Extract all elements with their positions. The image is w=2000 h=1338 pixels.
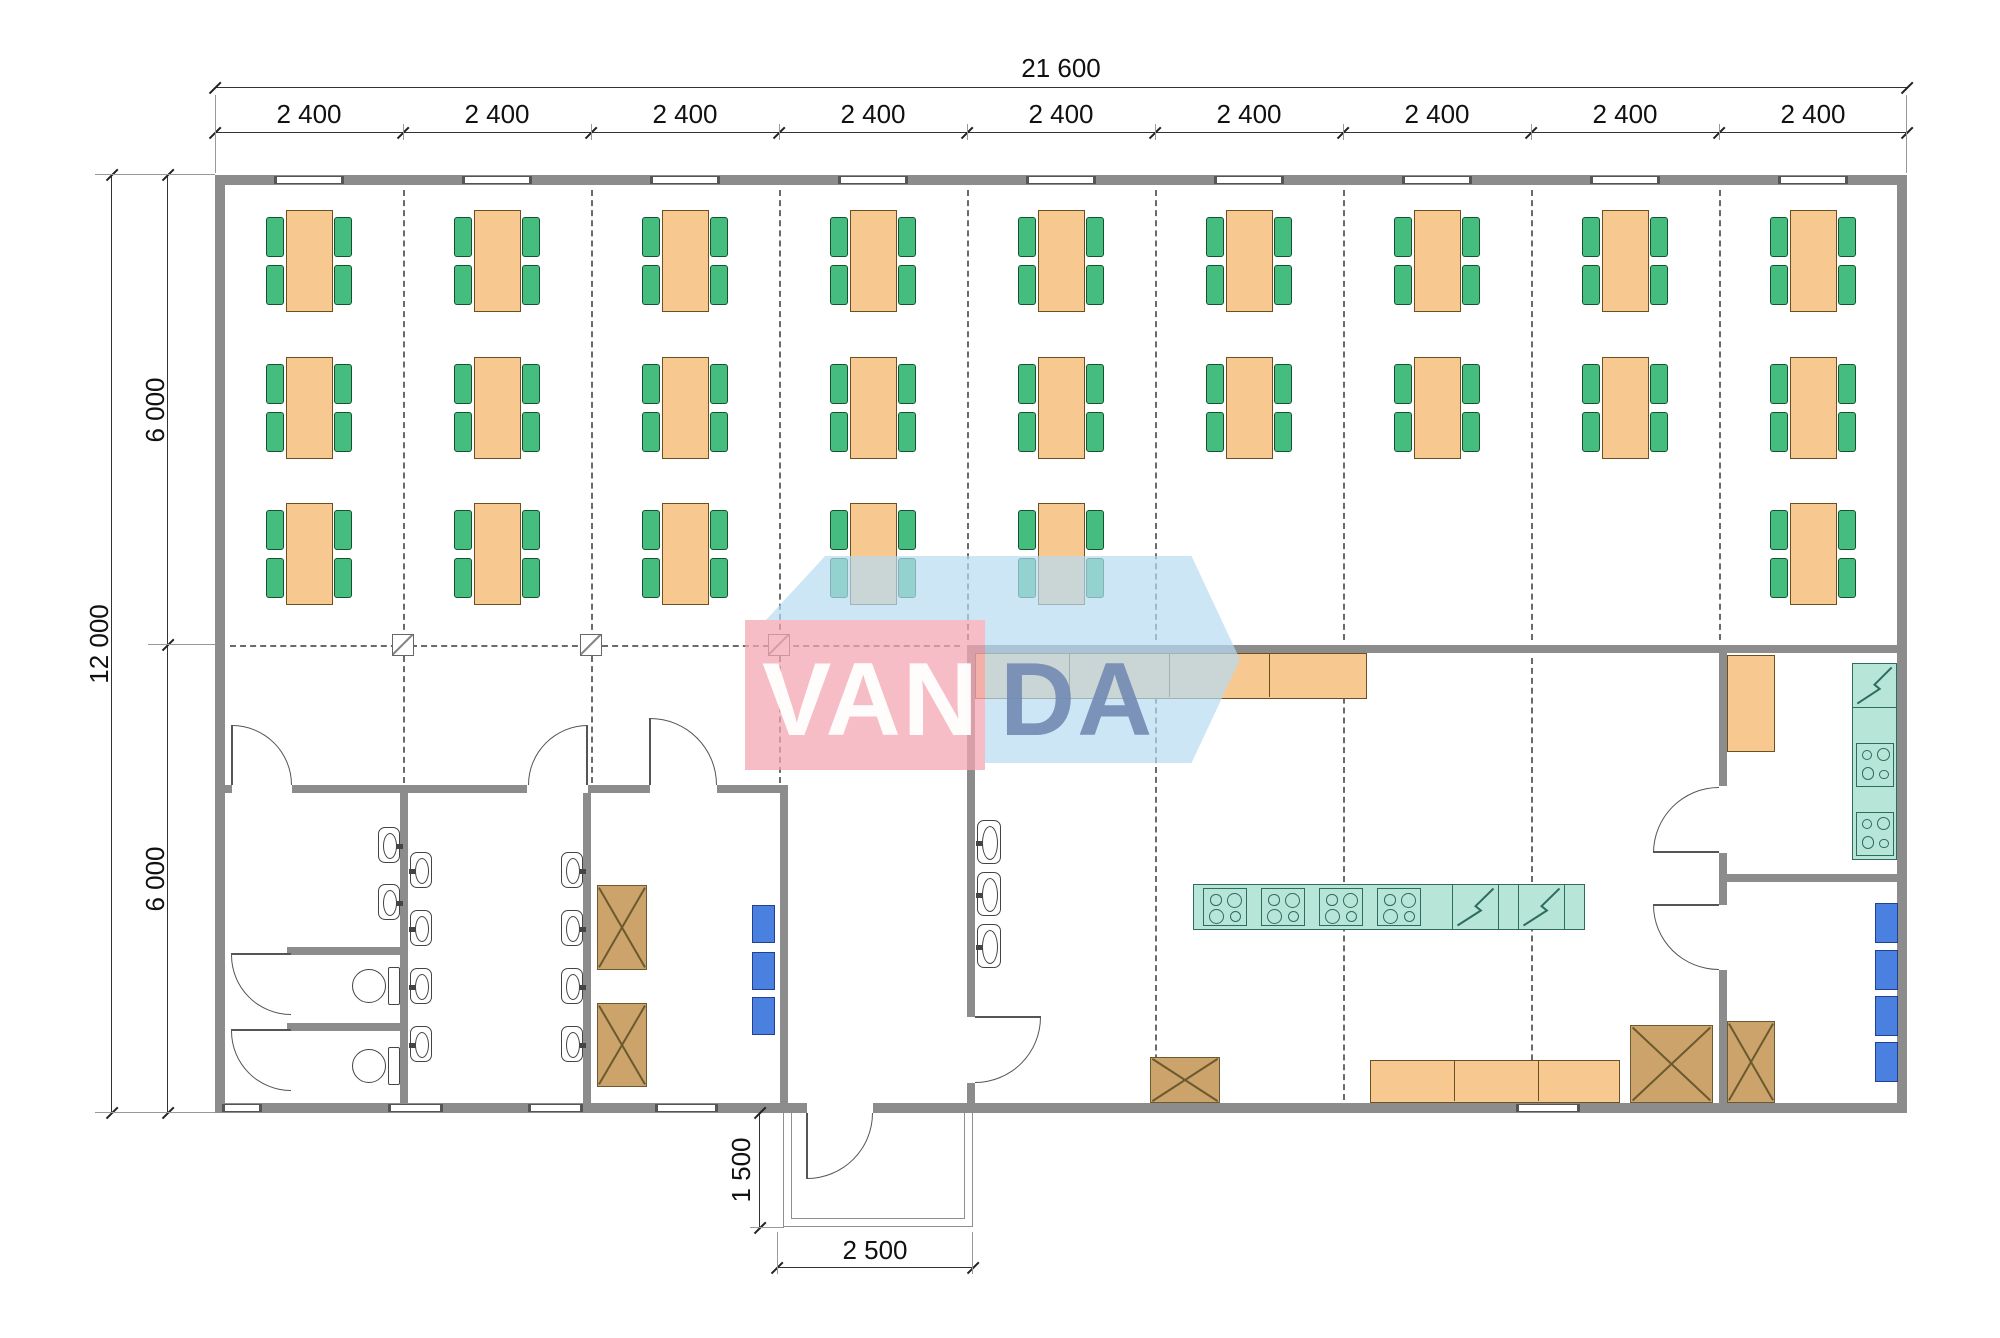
wall: [717, 785, 788, 793]
chair: [898, 265, 916, 305]
chair: [642, 558, 660, 598]
wash-basin: [561, 1026, 583, 1062]
dining-table: [1414, 210, 1461, 312]
dining-table: [1790, 210, 1837, 312]
chair: [898, 510, 916, 550]
chair: [522, 510, 540, 550]
dining-table: [850, 503, 897, 605]
grid-line: [779, 190, 781, 640]
grid-line: [1155, 190, 1157, 640]
stove: [1856, 812, 1894, 856]
basin-tap: [976, 841, 983, 846]
wall: [780, 793, 788, 1103]
chair: [830, 412, 848, 452]
dining-table: [474, 503, 521, 605]
extension-line: [591, 124, 592, 140]
burner: [1879, 770, 1889, 780]
basin-tap: [579, 927, 586, 932]
wall: [1719, 653, 1727, 786]
floor-plan-canvas: 21 60012 0006 0006 0001 5002 5002 4002 4…: [0, 0, 2000, 1338]
extension-line: [967, 124, 968, 140]
extension-line: [95, 1112, 215, 1113]
storage-cabinet: [597, 885, 647, 970]
chair: [1206, 217, 1224, 257]
dining-table: [1038, 357, 1085, 459]
wash-basin: [561, 910, 583, 946]
wash-basin: [561, 852, 583, 888]
chair: [1582, 265, 1600, 305]
stove: [1261, 888, 1305, 926]
chair: [1582, 364, 1600, 404]
burner: [1862, 819, 1872, 829]
dimension-line: [777, 1267, 973, 1268]
chair: [1394, 217, 1412, 257]
dim-bay-width: 2 400: [1585, 101, 1665, 127]
chair: [898, 217, 916, 257]
chair: [522, 217, 540, 257]
burner: [1268, 894, 1279, 905]
chair: [266, 558, 284, 598]
window: [1778, 176, 1848, 184]
window: [650, 176, 720, 184]
burner: [1209, 909, 1224, 924]
chair: [642, 364, 660, 404]
basin-bowl: [566, 974, 580, 1000]
wall: [1719, 853, 1727, 905]
extension-line: [972, 1232, 973, 1274]
extension-line: [148, 644, 215, 645]
wash-basin: [410, 852, 432, 888]
dining-table: [286, 210, 333, 312]
chair: [710, 265, 728, 305]
chair: [1838, 510, 1856, 550]
chair: [1462, 412, 1480, 452]
burner: [1267, 909, 1282, 924]
serving-counter: [975, 653, 1367, 699]
locker: [752, 997, 775, 1035]
toilet-tank: [388, 967, 400, 1005]
wall: [873, 1103, 1907, 1113]
counter-divider: [1454, 1061, 1455, 1101]
door-leaf: [1653, 851, 1719, 853]
wall: [215, 175, 225, 1113]
door-leaf: [231, 725, 233, 785]
wash-basin: [977, 872, 1001, 916]
counter-divider: [1169, 654, 1170, 697]
basin-bowl: [982, 930, 998, 964]
chair: [1086, 217, 1104, 257]
toilet: [352, 1046, 400, 1086]
chair: [1838, 265, 1856, 305]
dining-table: [662, 210, 709, 312]
grid-line: [1155, 658, 1157, 1100]
extension-line: [779, 124, 780, 140]
chair: [454, 217, 472, 257]
chair: [266, 412, 284, 452]
chair: [1650, 217, 1668, 257]
locker: [752, 905, 775, 943]
wall: [287, 1023, 400, 1031]
dim-bay-width: 2 400: [1397, 101, 1477, 127]
chair: [334, 510, 352, 550]
burner: [1404, 911, 1415, 922]
dining-table: [286, 357, 333, 459]
chair: [642, 412, 660, 452]
burner: [1288, 911, 1299, 922]
wash-basin: [410, 910, 432, 946]
burner: [1384, 894, 1395, 905]
chair: [1770, 412, 1788, 452]
storage-cabinet: [1630, 1025, 1713, 1103]
basin-tap: [396, 901, 403, 906]
chair: [642, 510, 660, 550]
chair: [830, 558, 848, 598]
burner: [1877, 748, 1890, 761]
chair: [1838, 412, 1856, 452]
extension-line: [1531, 124, 1532, 140]
watermark-text-left: VAN: [762, 648, 980, 752]
dim-bay-width: 2 400: [645, 101, 725, 127]
burner: [1343, 893, 1358, 908]
column-marker: [580, 634, 602, 656]
toilet-bowl: [352, 1049, 386, 1083]
wash-basin: [977, 820, 1001, 864]
dim-porch-width: 2 500: [830, 1237, 920, 1263]
burner: [1325, 909, 1340, 924]
chair: [334, 217, 352, 257]
burner: [1879, 839, 1889, 849]
chair: [1018, 558, 1036, 598]
basin-bowl: [566, 1032, 580, 1058]
basin-tap: [409, 985, 416, 990]
dining-table: [662, 357, 709, 459]
chair: [1206, 364, 1224, 404]
door-leaf: [586, 725, 588, 785]
column-marker: [392, 634, 414, 656]
dimension-line: [215, 132, 1907, 133]
chair: [830, 217, 848, 257]
burner: [1877, 817, 1890, 830]
chair: [454, 364, 472, 404]
chair: [642, 217, 660, 257]
wall: [583, 793, 591, 1103]
door-leaf: [975, 1016, 1041, 1018]
chair: [334, 364, 352, 404]
chair: [454, 412, 472, 452]
door-arc: [650, 718, 717, 785]
basin-bowl: [383, 890, 397, 916]
dim-bay-width: 2 400: [1773, 101, 1853, 127]
chair: [1018, 510, 1036, 550]
chair: [1086, 558, 1104, 598]
chair: [266, 265, 284, 305]
window: [1590, 176, 1660, 184]
chair: [522, 265, 540, 305]
basin-bowl: [415, 916, 429, 942]
chair: [710, 510, 728, 550]
porch-outline: [791, 1113, 965, 1219]
extension-line: [1719, 124, 1720, 140]
dining-table: [1602, 210, 1649, 312]
chair: [1770, 217, 1788, 257]
column-marker: [768, 634, 790, 656]
wall: [967, 1083, 975, 1103]
toilet-tank: [388, 1047, 400, 1085]
dining-table: [286, 503, 333, 605]
wall: [1897, 175, 1907, 1113]
window: [388, 1104, 443, 1112]
locker: [1875, 950, 1898, 990]
dining-table: [474, 357, 521, 459]
chair: [1582, 412, 1600, 452]
grid-line: [779, 656, 781, 783]
burner: [1210, 894, 1221, 905]
door-leaf: [649, 718, 651, 785]
chair: [454, 265, 472, 305]
chair: [710, 364, 728, 404]
kitchen-counter: [1370, 1060, 1620, 1103]
refrigerator-symbol: [1518, 884, 1565, 930]
chair: [898, 558, 916, 598]
chair: [1394, 412, 1412, 452]
burner: [1862, 750, 1872, 760]
extension-line: [1906, 95, 1907, 173]
window: [528, 1104, 583, 1112]
chair: [1274, 217, 1292, 257]
door-arc: [231, 955, 291, 1015]
chair: [1462, 265, 1480, 305]
chair: [454, 558, 472, 598]
basin-tap: [976, 893, 983, 898]
stove: [1319, 888, 1363, 926]
dining-table: [850, 210, 897, 312]
dim-half-height-top: 6 000: [142, 365, 168, 455]
wall: [967, 645, 975, 1017]
grid-line: [403, 656, 405, 783]
chair: [1274, 265, 1292, 305]
grid-line: [967, 190, 969, 640]
extension-line: [777, 1232, 778, 1274]
basin-bowl: [415, 858, 429, 884]
door-arc: [231, 1031, 291, 1091]
burner: [1230, 911, 1241, 922]
door-arc: [1653, 905, 1719, 970]
chair: [522, 558, 540, 598]
window: [274, 176, 344, 184]
chair: [1086, 265, 1104, 305]
basin-tap: [409, 1043, 416, 1048]
chair: [1394, 265, 1412, 305]
chair: [1838, 364, 1856, 404]
chair: [1086, 412, 1104, 452]
stove: [1377, 888, 1421, 926]
locker: [752, 952, 775, 990]
chair: [830, 265, 848, 305]
door-arc: [528, 725, 588, 785]
window: [838, 176, 908, 184]
wall: [292, 785, 527, 793]
dining-table: [1414, 357, 1461, 459]
chair: [266, 510, 284, 550]
stove: [1203, 888, 1247, 926]
chair: [1770, 364, 1788, 404]
grid-line: [1531, 658, 1533, 1100]
counter-divider: [1269, 654, 1270, 697]
door-arc: [232, 725, 292, 785]
burner: [1285, 893, 1300, 908]
locker: [1875, 996, 1898, 1036]
chair: [334, 558, 352, 598]
basin-tap: [976, 945, 983, 950]
chair: [1206, 412, 1224, 452]
wall: [215, 1103, 807, 1113]
grid-line: [1343, 658, 1345, 1100]
basin-bowl: [566, 858, 580, 884]
wall: [1719, 970, 1727, 1103]
dining-table: [1038, 210, 1085, 312]
storage-cabinet: [597, 1003, 647, 1087]
chair: [1206, 265, 1224, 305]
chair: [334, 412, 352, 452]
extension-line: [403, 124, 404, 140]
chair: [710, 217, 728, 257]
wall: [400, 793, 408, 1103]
dim-bay-width: 2 400: [269, 101, 349, 127]
basin-tap: [409, 869, 416, 874]
extension-line: [215, 95, 216, 173]
basin-tap: [579, 1043, 586, 1048]
chair: [1770, 265, 1788, 305]
dim-bay-width: 2 400: [833, 101, 913, 127]
dimension-line: [759, 1113, 760, 1228]
dim-total-height: 12 000: [86, 599, 112, 689]
window: [222, 1104, 262, 1112]
wash-basin: [410, 968, 432, 1004]
door-arc: [1653, 787, 1719, 853]
toilet-bowl: [352, 969, 386, 1003]
chair: [1018, 364, 1036, 404]
chair: [1462, 364, 1480, 404]
wash-basin: [977, 924, 1001, 968]
chair: [1650, 412, 1668, 452]
chair: [642, 265, 660, 305]
extension-line: [1155, 124, 1156, 140]
chair: [898, 364, 916, 404]
chair: [1838, 558, 1856, 598]
basin-tap: [409, 927, 416, 932]
wall: [588, 785, 650, 793]
window: [655, 1104, 718, 1112]
dim-bay-width: 2 400: [1021, 101, 1101, 127]
door-leaf: [1653, 904, 1719, 906]
chair: [1018, 217, 1036, 257]
extension-line: [1343, 124, 1344, 140]
grid-line: [591, 190, 593, 640]
chair: [1086, 364, 1104, 404]
wall: [225, 785, 232, 793]
grid-line: [403, 190, 405, 640]
locker: [1875, 903, 1898, 943]
basin-bowl: [415, 974, 429, 1000]
chair: [830, 364, 848, 404]
burner: [1401, 893, 1416, 908]
door-arc: [975, 1017, 1041, 1083]
dining-table: [1226, 210, 1273, 312]
basin-tap: [396, 844, 403, 849]
basin-bowl: [982, 878, 998, 912]
chair: [522, 412, 540, 452]
dining-table: [850, 357, 897, 459]
chair: [1018, 412, 1036, 452]
locker: [1875, 1042, 1898, 1082]
refrigerator-symbol: [1852, 663, 1897, 708]
extension-line: [95, 174, 215, 175]
burner: [1346, 911, 1357, 922]
dimension-line: [215, 87, 1907, 88]
chair: [1086, 510, 1104, 550]
chair: [1462, 217, 1480, 257]
basin-tap: [579, 985, 586, 990]
burner: [1383, 909, 1398, 924]
stove: [1856, 743, 1894, 787]
grid-line: [591, 656, 593, 783]
dining-table: [1602, 357, 1649, 459]
grid-line: [1531, 190, 1533, 640]
window: [462, 176, 532, 184]
door-leaf: [231, 953, 291, 955]
basin-bowl: [982, 826, 998, 860]
chair: [1770, 558, 1788, 598]
basin-bowl: [566, 916, 580, 942]
wash-basin: [378, 827, 400, 863]
kitchen-cabinet: [1727, 655, 1775, 752]
chair: [266, 217, 284, 257]
burner: [1227, 893, 1242, 908]
chair: [1650, 265, 1668, 305]
wash-basin: [378, 884, 400, 920]
dim-bay-width: 2 400: [457, 101, 537, 127]
chair: [1838, 217, 1856, 257]
chair: [1018, 265, 1036, 305]
door-leaf: [231, 1029, 291, 1031]
extension-line: [750, 1227, 784, 1228]
window: [1516, 1104, 1580, 1112]
chair: [1394, 364, 1412, 404]
window: [1026, 176, 1096, 184]
dining-table: [474, 210, 521, 312]
dim-bay-width: 2 400: [1209, 101, 1289, 127]
chair: [1274, 364, 1292, 404]
basin-tap: [579, 869, 586, 874]
wall: [1727, 874, 1897, 882]
wall: [287, 947, 400, 955]
chair: [1274, 412, 1292, 452]
wall: [975, 645, 1897, 653]
chair: [1770, 510, 1788, 550]
storage-cabinet: [1150, 1057, 1220, 1103]
burner: [1862, 767, 1875, 780]
storage-cabinet: [1727, 1021, 1775, 1103]
dining-table: [1790, 357, 1837, 459]
dining-table: [1790, 503, 1837, 605]
wash-basin: [561, 968, 583, 1004]
chair: [710, 558, 728, 598]
dining-table: [662, 503, 709, 605]
window: [1214, 176, 1284, 184]
basin-bowl: [415, 1032, 429, 1058]
chair: [1582, 217, 1600, 257]
counter-divider: [1538, 1061, 1539, 1101]
